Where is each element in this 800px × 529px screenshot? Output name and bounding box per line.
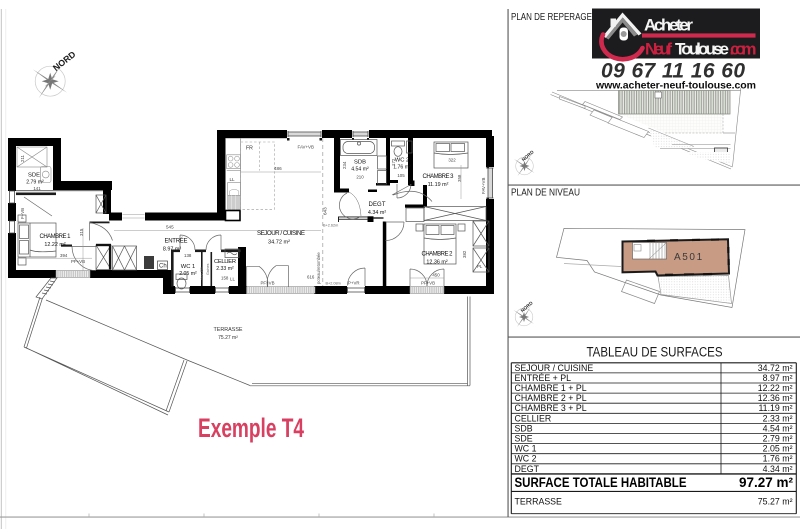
svg-text:12.22 m²: 12.22 m² — [44, 242, 65, 248]
svg-text:234: 234 — [342, 161, 347, 169]
svg-text:PL: PL — [477, 264, 483, 269]
svg-text:desc.EP: desc.EP — [200, 267, 204, 280]
svg-text:LL: LL — [230, 177, 236, 182]
svg-text:486: 486 — [274, 166, 282, 171]
svg-text:8.97 m²: 8.97 m² — [763, 373, 793, 383]
svg-text:Gaines: Gaines — [206, 263, 210, 275]
svg-text:11.19 m²: 11.19 m² — [758, 403, 792, 413]
svg-text:2.05 m²: 2.05 m² — [763, 444, 793, 454]
svg-text:75.27 m²: 75.27 m² — [218, 335, 238, 341]
svg-text:12.36 m²: 12.36 m² — [426, 260, 447, 266]
svg-text:Exemple T4: Exemple T4 — [198, 413, 304, 443]
svg-text:PF+VB: PF+VB — [261, 280, 275, 285]
svg-text:WC 2: WC 2 — [395, 158, 410, 164]
svg-text:158: 158 — [221, 276, 229, 281]
svg-text:LL: LL — [230, 277, 235, 282]
svg-text:2.33 m²: 2.33 m² — [763, 413, 793, 423]
svg-text:SEJOUR / CUISINE: SEJOUR / CUISINE — [257, 230, 305, 237]
svg-text:TERRASSE: TERRASSE — [515, 497, 563, 507]
svg-text:P+VR: P+VR — [348, 281, 360, 286]
svg-text:Neuf: Neuf — [645, 40, 672, 59]
svg-text:382: 382 — [462, 250, 467, 258]
svg-text:Acheter: Acheter — [644, 16, 693, 35]
svg-text:A501: A501 — [674, 252, 704, 263]
svg-text:CHAMBRE 3: CHAMBRE 3 — [423, 174, 455, 180]
svg-text:34.72 m²: 34.72 m² — [758, 363, 793, 373]
svg-text:211: 211 — [20, 154, 25, 162]
svg-text:SDB: SDB — [515, 423, 533, 433]
svg-text:ENTRÉE + PL: ENTRÉE + PL — [515, 373, 572, 383]
svg-text:34.72 m²: 34.72 m² — [268, 240, 290, 246]
svg-text:4.54 m²: 4.54 m² — [763, 423, 793, 433]
svg-text:8.97 m²: 8.97 m² — [163, 247, 181, 253]
svg-text:11.19 m²: 11.19 m² — [428, 182, 449, 188]
svg-text:CHAMBRE 3 + PL: CHAMBRE 3 + PL — [515, 403, 587, 413]
svg-text:www.acheter-neuf-toulouse.com: www.acheter-neuf-toulouse.com — [595, 79, 756, 91]
svg-text:545: 545 — [166, 224, 174, 229]
svg-text:1.76 m²: 1.76 m² — [763, 454, 793, 464]
svg-text:141: 141 — [33, 186, 41, 191]
svg-text:PLAN DE REPERAGE: PLAN DE REPERAGE — [511, 12, 592, 23]
svg-text:210: 210 — [356, 175, 364, 180]
svg-text:FAV+VB: FAV+VB — [298, 144, 314, 149]
svg-text:SDB: SDB — [354, 160, 366, 166]
svg-text:WC 1: WC 1 — [181, 264, 196, 270]
svg-text:PF+VB: PF+VB — [421, 281, 435, 286]
svg-text:322: 322 — [448, 158, 456, 163]
svg-text:B+2.08m: B+2.08m — [326, 282, 341, 286]
svg-text:SDE: SDE — [28, 173, 40, 179]
svg-text:TERRASSE: TERRASSE — [213, 327, 242, 333]
svg-text:B+2.62m: B+2.62m — [323, 224, 338, 228]
svg-text:CELLIER: CELLIER — [515, 413, 552, 423]
svg-text:CHAMBRE 2 + PL: CHAMBRE 2 + PL — [515, 393, 587, 403]
svg-text:2.05 m²: 2.05 m² — [179, 271, 197, 277]
svg-text:97.27 m²: 97.27 m² — [739, 475, 794, 490]
svg-text:2.33 m²: 2.33 m² — [216, 266, 234, 272]
svg-text:WC 2: WC 2 — [515, 454, 537, 464]
svg-text:F+VB: F+VB — [20, 208, 25, 219]
svg-text:4.34 m²: 4.34 m² — [368, 210, 386, 216]
svg-text:12.22 m²: 12.22 m² — [758, 383, 793, 393]
svg-text:PLAN DE NIVEAU: PLAN DE NIVEAU — [511, 187, 580, 198]
svg-text:75.27 m²: 75.27 m² — [758, 497, 793, 507]
svg-text:616: 616 — [307, 275, 315, 280]
svg-text:394: 394 — [60, 253, 68, 258]
svg-text:SURFACE TOTALE HABITABLE: SURFACE TOTALE HABITABLE — [515, 475, 687, 490]
svg-text:12.36 m²: 12.36 m² — [758, 393, 793, 403]
svg-text:ENTRÉE: ENTRÉE — [165, 238, 188, 245]
svg-text:CHAMBRE 1: CHAMBRE 1 — [40, 234, 72, 240]
svg-text:CELLIER: CELLIER — [214, 259, 236, 265]
svg-text:poteau/retombée: poteau/retombée — [316, 252, 321, 284]
svg-text:.com: .com — [730, 40, 757, 59]
svg-text:SDE: SDE — [515, 434, 533, 444]
svg-text:172: 172 — [391, 158, 396, 166]
svg-text:Toulouse: Toulouse — [675, 40, 729, 59]
svg-text:315: 315 — [79, 228, 84, 236]
svg-text:DEGT: DEGT — [369, 202, 386, 208]
svg-text:138: 138 — [184, 253, 192, 258]
svg-text:CHAMBRE 2: CHAMBRE 2 — [422, 252, 454, 258]
svg-text:4.34 m²: 4.34 m² — [763, 464, 793, 474]
svg-text:WC 1: WC 1 — [515, 444, 537, 454]
svg-text:643: 643 — [323, 207, 328, 215]
svg-text:2.79 m²: 2.79 m² — [26, 180, 44, 186]
svg-text:105: 105 — [397, 173, 405, 178]
svg-text:PF+VB: PF+VB — [71, 259, 85, 264]
svg-text:FR: FR — [246, 145, 253, 151]
svg-text:DEGT: DEGT — [515, 464, 540, 474]
svg-text:SEJOUR / CUISINE: SEJOUR / CUISINE — [515, 363, 594, 373]
svg-text:450: 450 — [432, 273, 440, 278]
svg-text:2.79 m²: 2.79 m² — [763, 434, 793, 444]
svg-text:Ch: Ch — [159, 264, 167, 270]
svg-text:CHAMBRE 1 + PL: CHAMBRE 1 + PL — [515, 383, 587, 393]
svg-text:FAV+VB: FAV+VB — [481, 178, 486, 194]
svg-text:TABLEAU DE SURFACES: TABLEAU DE SURFACES — [587, 345, 723, 360]
svg-text:4.54 m²: 4.54 m² — [351, 167, 369, 173]
